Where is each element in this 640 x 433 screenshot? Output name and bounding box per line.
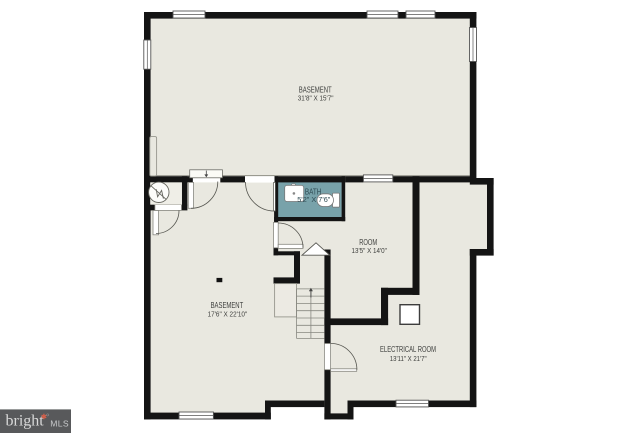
svg-text:17'6" X 22'10": 17'6" X 22'10" [208, 309, 248, 318]
svg-text:bright: bright [6, 413, 45, 430]
svg-text:13'11" X 21'7": 13'11" X 21'7" [390, 354, 427, 363]
svg-text:13'5" X 14'0": 13'5" X 14'0" [352, 246, 388, 255]
svg-text:ELECTRICAL ROOM: ELECTRICAL ROOM [380, 345, 436, 354]
svg-text:31'8" X 15'7": 31'8" X 15'7" [298, 94, 334, 103]
svg-text:5'2" X 7'6": 5'2" X 7'6" [297, 195, 330, 204]
svg-text:MLS: MLS [50, 418, 69, 428]
